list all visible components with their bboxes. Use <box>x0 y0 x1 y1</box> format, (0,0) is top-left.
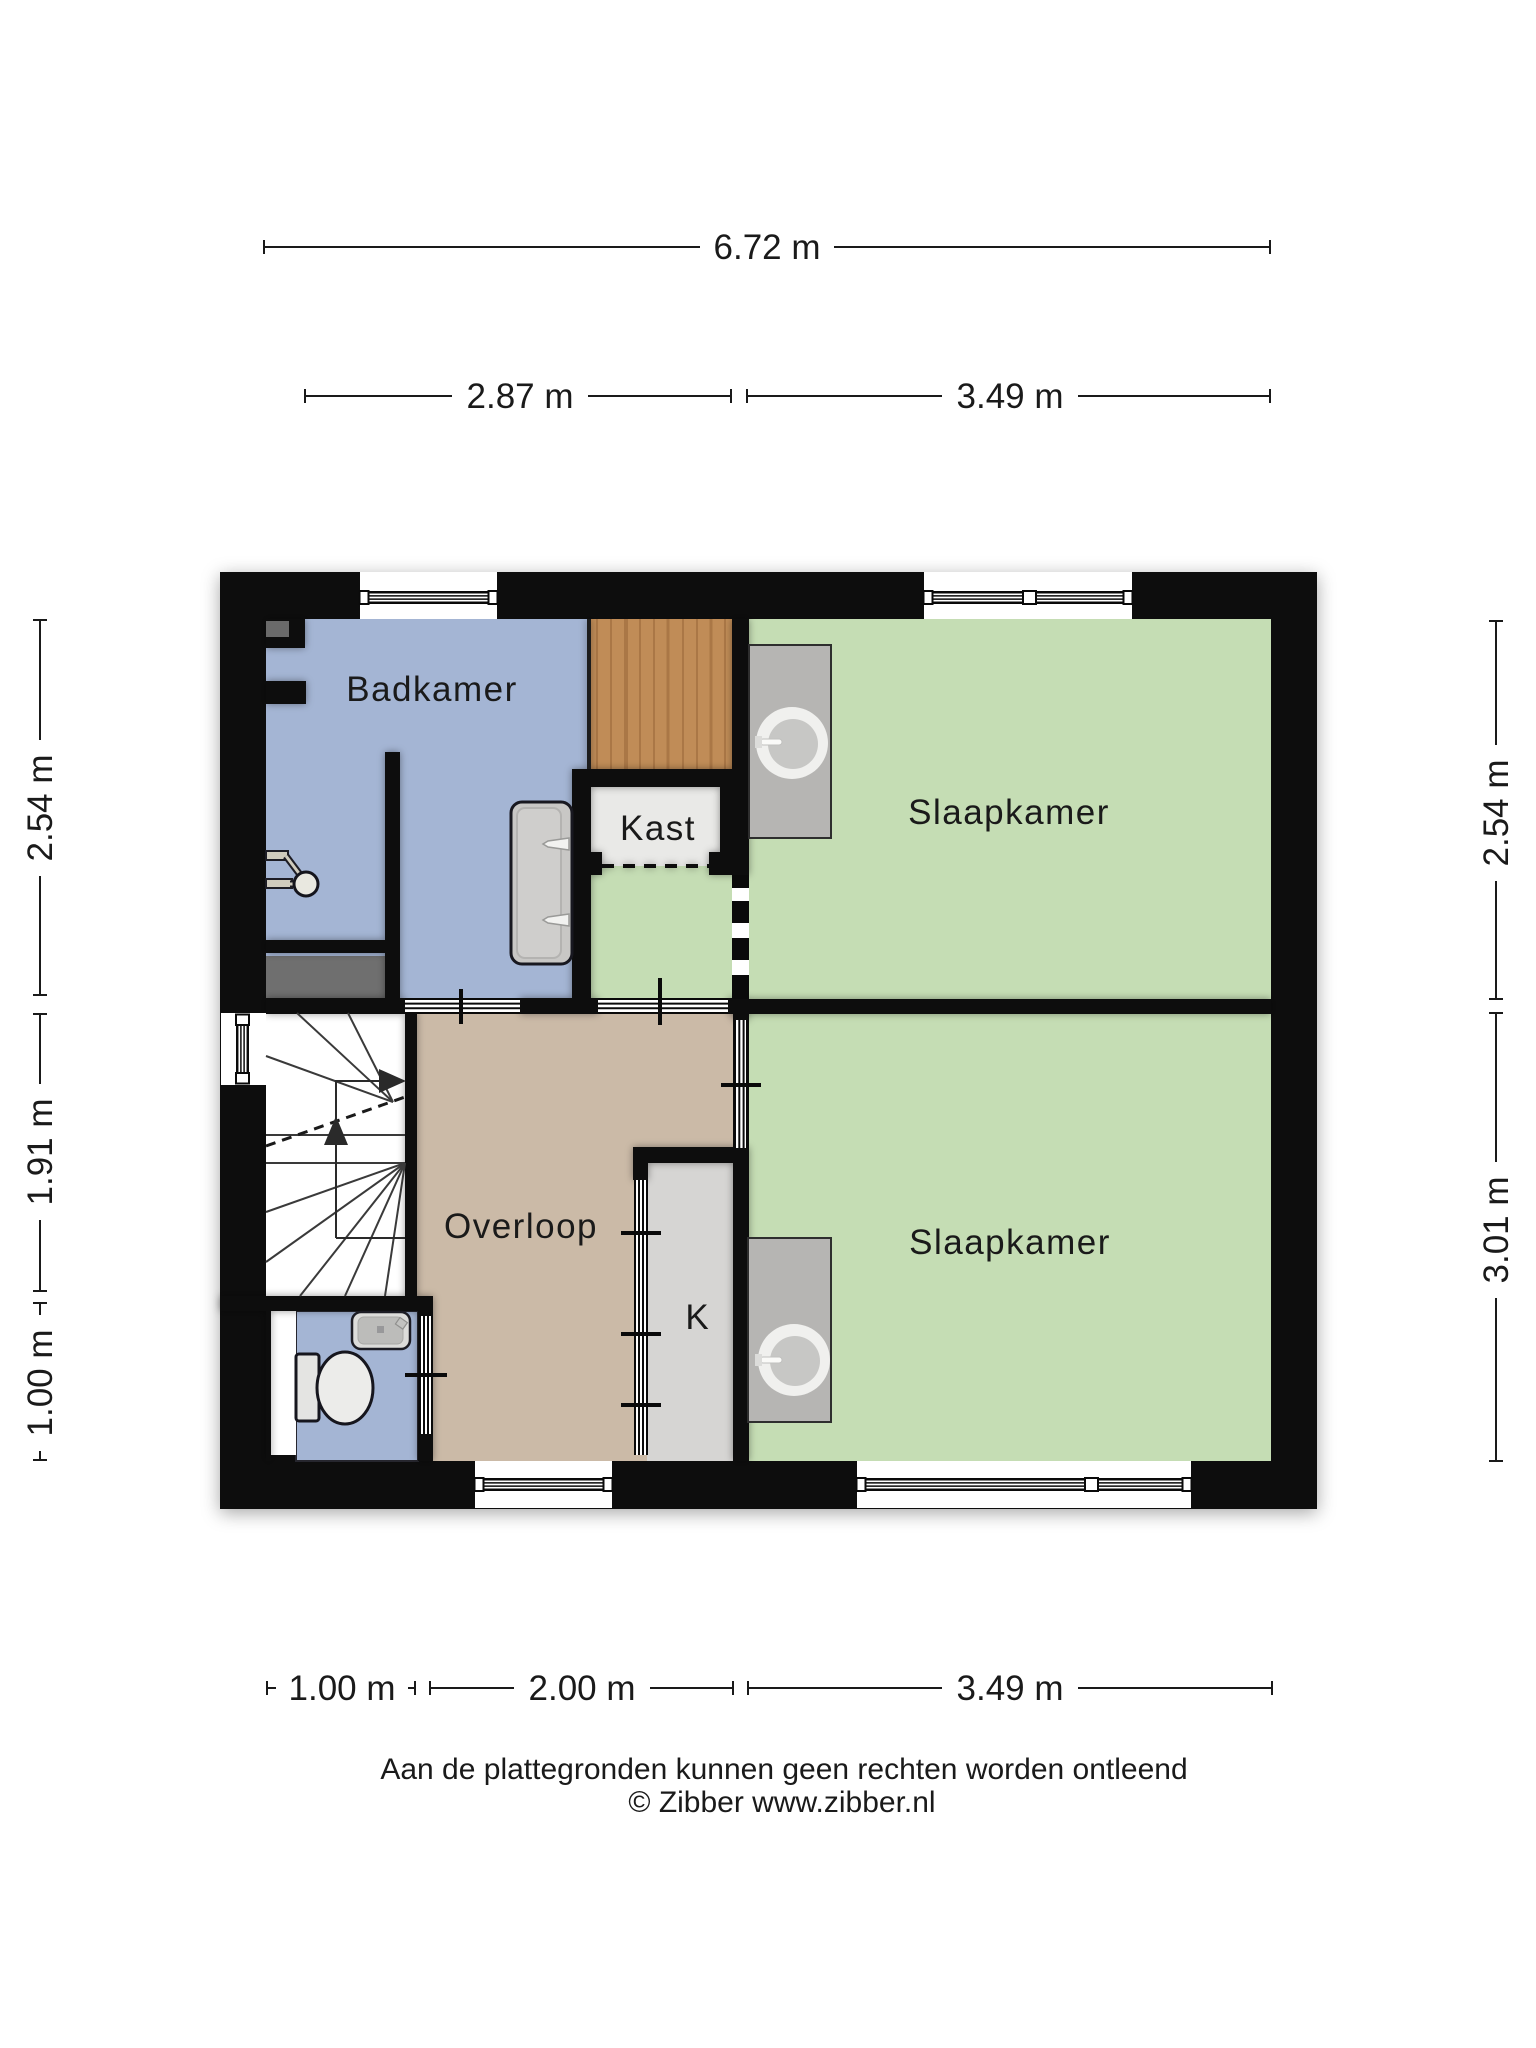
svg-text:2.00 m: 2.00 m <box>529 1669 636 1708</box>
svg-text:1.00 m: 1.00 m <box>21 1330 60 1437</box>
svg-text:3.01 m: 3.01 m <box>1477 1177 1516 1284</box>
svg-text:2.54 m: 2.54 m <box>1477 760 1516 867</box>
svg-text:1.91 m: 1.91 m <box>21 1099 60 1206</box>
svg-text:3.49 m: 3.49 m <box>957 1669 1064 1708</box>
svg-text:Aan de plattegronden kunnen ge: Aan de plattegronden kunnen geen rechten… <box>380 1753 1187 1786</box>
svg-text:Kast: Kast <box>620 809 696 848</box>
svg-text:Slaapkamer: Slaapkamer <box>908 793 1110 832</box>
svg-text:3.49 m: 3.49 m <box>957 377 1064 416</box>
svg-text:Badkamer: Badkamer <box>346 670 518 709</box>
svg-text:1.00 m: 1.00 m <box>289 1669 396 1708</box>
svg-text:6.72 m: 6.72 m <box>714 228 821 267</box>
svg-text:© Zibber www.zibber.nl: © Zibber www.zibber.nl <box>628 1786 935 1819</box>
svg-text:K: K <box>685 1298 708 1337</box>
svg-text:2.87 m: 2.87 m <box>467 377 574 416</box>
svg-text:Slaapkamer: Slaapkamer <box>909 1223 1111 1262</box>
svg-text:Overloop: Overloop <box>444 1207 598 1246</box>
svg-text:2.54 m: 2.54 m <box>21 755 60 862</box>
